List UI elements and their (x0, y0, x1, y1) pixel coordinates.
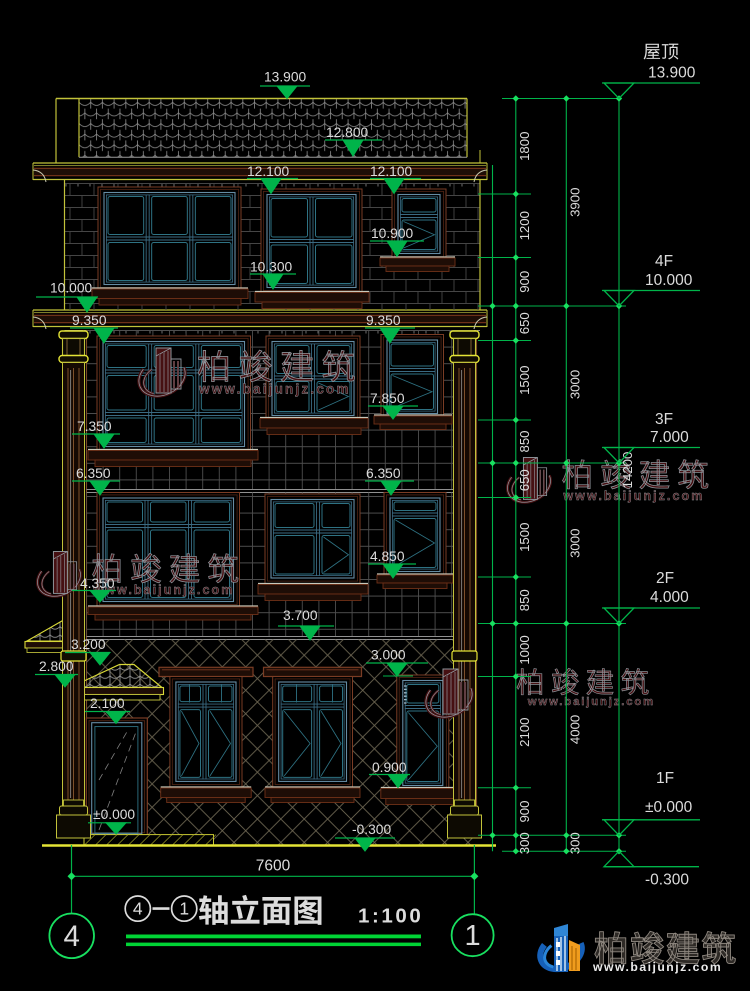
svg-text:10.000: 10.000 (50, 281, 93, 296)
svg-text:2.800: 2.800 (39, 659, 74, 674)
svg-text:www.baijunjz.com: www.baijunjz.com (562, 489, 704, 503)
svg-text:3.200: 3.200 (71, 637, 106, 652)
svg-text:2100: 2100 (517, 717, 532, 746)
svg-text:7.350: 7.350 (77, 419, 112, 434)
svg-text:13.900: 13.900 (648, 65, 696, 82)
svg-text:300: 300 (567, 832, 582, 854)
svg-text:14200: 14200 (620, 452, 635, 489)
svg-text:650: 650 (517, 469, 532, 491)
svg-text:4.850: 4.850 (370, 549, 405, 564)
svg-text:300: 300 (517, 832, 532, 854)
svg-text:7.000: 7.000 (650, 429, 689, 446)
svg-text:1: 1 (179, 899, 189, 919)
svg-text:4F: 4F (655, 253, 673, 270)
svg-text:12.800: 12.800 (326, 125, 369, 140)
svg-text:4: 4 (133, 899, 143, 919)
svg-text:7600: 7600 (256, 858, 291, 875)
svg-text:3000: 3000 (567, 529, 582, 558)
svg-text:-0.300: -0.300 (352, 822, 391, 837)
svg-text:1800: 1800 (517, 132, 532, 161)
svg-text:3F: 3F (655, 411, 673, 428)
svg-text:900: 900 (517, 271, 532, 293)
svg-text:12.100: 12.100 (247, 164, 290, 179)
svg-text:900: 900 (517, 801, 532, 823)
svg-text:3.000: 3.000 (371, 648, 406, 663)
svg-text:10.300: 10.300 (250, 260, 293, 275)
svg-text:9.350: 9.350 (366, 313, 401, 328)
svg-text:www.baijunjz.com: www.baijunjz.com (527, 696, 655, 708)
svg-text:1200: 1200 (517, 211, 532, 240)
svg-text:4.000: 4.000 (650, 589, 689, 606)
svg-text:10.900: 10.900 (371, 226, 414, 241)
svg-text:3.700: 3.700 (283, 608, 318, 623)
svg-text:-0.300: -0.300 (645, 872, 689, 889)
svg-text:2F: 2F (656, 570, 674, 587)
svg-text:3900: 3900 (567, 188, 582, 217)
svg-text:www.baijunjz.com: www.baijunjz.com (198, 382, 351, 397)
svg-text:6.350: 6.350 (366, 466, 401, 481)
svg-text:10.000: 10.000 (645, 272, 693, 289)
svg-text:850: 850 (517, 430, 532, 452)
svg-text:2.100: 2.100 (90, 696, 125, 711)
svg-text:4: 4 (63, 920, 79, 953)
svg-text:±0.000: ±0.000 (93, 807, 135, 822)
svg-text:850: 850 (517, 589, 532, 611)
svg-text:1: 1 (465, 920, 481, 952)
svg-text:9.350: 9.350 (72, 313, 107, 328)
svg-text:1000: 1000 (517, 635, 532, 664)
svg-text:6.350: 6.350 (76, 466, 111, 481)
svg-text:7.850: 7.850 (370, 391, 405, 406)
svg-text:3000: 3000 (567, 370, 582, 399)
svg-text:1:100: 1:100 (358, 905, 423, 928)
svg-text:1500: 1500 (517, 523, 532, 552)
svg-text:www.baijunjz.com: www.baijunjz.com (592, 960, 722, 974)
svg-text:1500: 1500 (517, 366, 532, 395)
svg-text:4.350: 4.350 (80, 576, 115, 591)
svg-text:13.900: 13.900 (264, 70, 307, 85)
svg-text:4000: 4000 (567, 715, 582, 744)
svg-text:0.900: 0.900 (372, 760, 407, 775)
svg-text:1F: 1F (656, 770, 674, 787)
svg-text:±0.000: ±0.000 (645, 799, 693, 816)
svg-text:650: 650 (517, 312, 532, 334)
svg-text:12.100: 12.100 (370, 164, 413, 179)
